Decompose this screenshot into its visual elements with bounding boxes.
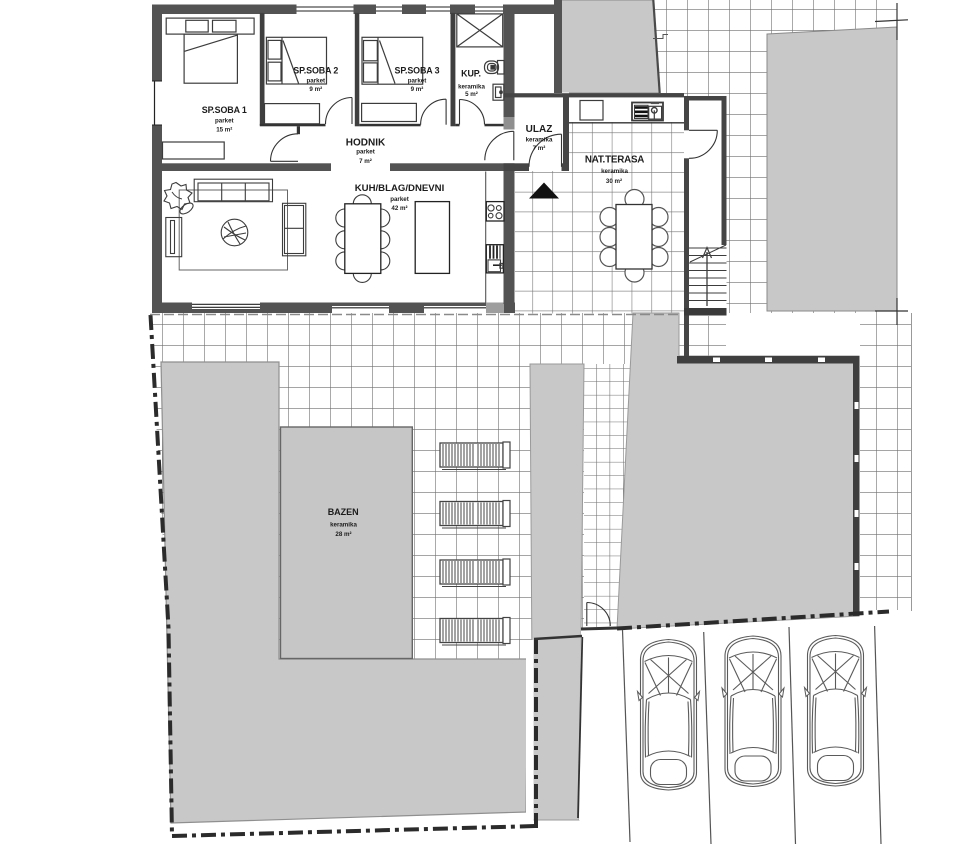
svg-text:ULAZ: ULAZ bbox=[526, 124, 553, 135]
svg-text:BAZEN: BAZEN bbox=[328, 507, 359, 517]
svg-text:30 m²: 30 m² bbox=[606, 178, 622, 185]
svg-text:7 m²: 7 m² bbox=[533, 145, 546, 152]
svg-text:15 m²: 15 m² bbox=[216, 127, 232, 134]
svg-text:SP.SOBA 3: SP.SOBA 3 bbox=[395, 65, 440, 75]
svg-text:parket: parket bbox=[356, 149, 375, 156]
svg-text:parket: parket bbox=[215, 117, 234, 124]
svg-text:keramika: keramika bbox=[458, 83, 485, 90]
svg-text:7 m²: 7 m² bbox=[359, 158, 372, 165]
svg-text:parket: parket bbox=[307, 78, 326, 85]
svg-text:28 m²: 28 m² bbox=[335, 531, 351, 538]
svg-text:HODNIK: HODNIK bbox=[346, 137, 386, 148]
svg-text:keramika: keramika bbox=[330, 522, 357, 529]
svg-text:9 m²: 9 m² bbox=[309, 86, 322, 93]
svg-text:keramika: keramika bbox=[601, 168, 628, 175]
svg-text:keramika: keramika bbox=[526, 136, 553, 143]
svg-text:KUH/BLAG/DNEVNI: KUH/BLAG/DNEVNI bbox=[355, 183, 445, 194]
svg-text:5 m²: 5 m² bbox=[465, 91, 478, 98]
svg-text:SP.SOBA 2: SP.SOBA 2 bbox=[293, 65, 338, 75]
svg-text:SP.SOBA 1: SP.SOBA 1 bbox=[202, 105, 247, 115]
svg-text:parket: parket bbox=[408, 78, 427, 85]
svg-text:parket: parket bbox=[390, 196, 409, 203]
svg-text:NAT.TERASA: NAT.TERASA bbox=[585, 154, 644, 165]
svg-text:42 m²: 42 m² bbox=[391, 205, 407, 212]
svg-text:9 m²: 9 m² bbox=[411, 86, 424, 93]
svg-text:KUP.: KUP. bbox=[461, 68, 481, 78]
